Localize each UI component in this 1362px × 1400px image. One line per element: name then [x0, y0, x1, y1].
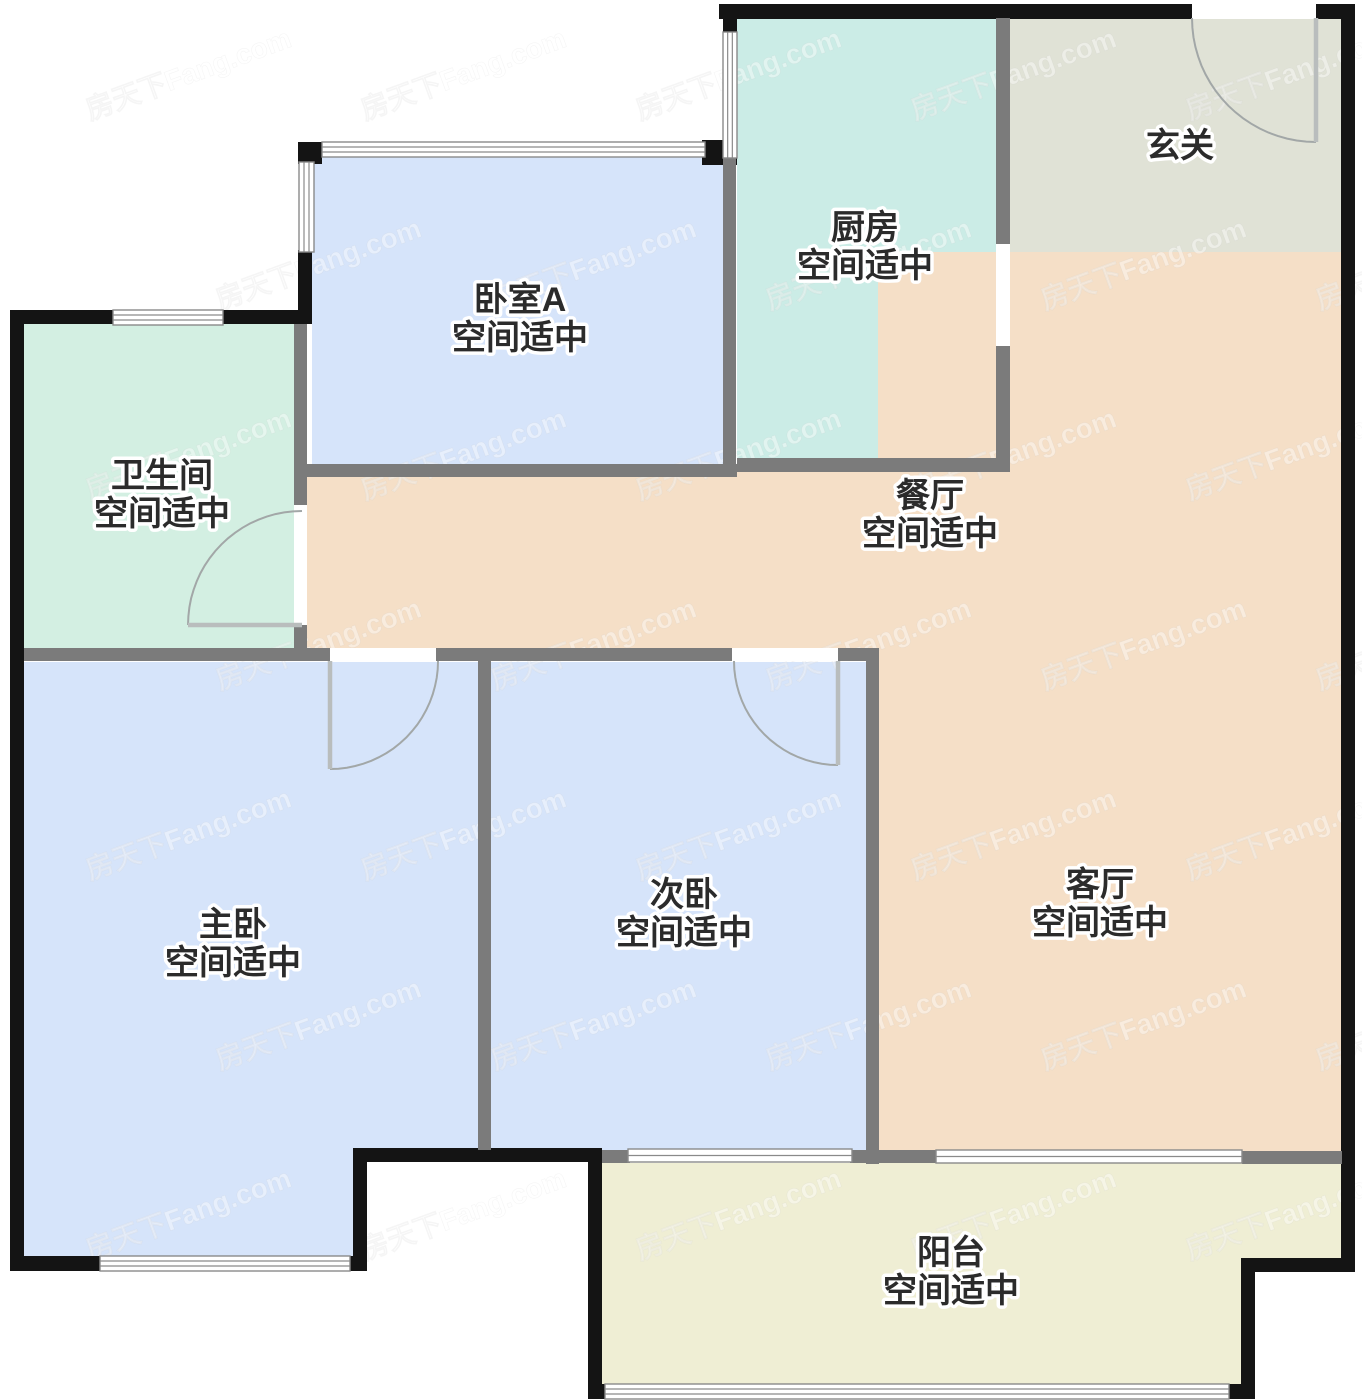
label-second: 次卧 — [650, 876, 718, 914]
label-dining: 餐厅 — [896, 477, 964, 515]
floor-plan-svg: 房天下Fang.com房天下Fang.com房天下Fang.com房天下Fang… — [0, 0, 1362, 1400]
interior-wall — [1242, 1151, 1342, 1164]
exterior-wall — [353, 1148, 367, 1270]
exterior-wall — [1241, 1258, 1355, 1272]
exterior-wall — [723, 4, 737, 34]
label-balcony: 阳台 — [917, 1234, 985, 1272]
exterior-wall — [1241, 1258, 1255, 1399]
exterior-wall — [10, 310, 115, 324]
interior-wall — [866, 648, 879, 1164]
sublabel-bedroomA: 空间适中 — [452, 319, 588, 357]
label-kitchen: 厨房 — [831, 209, 899, 247]
balcony-bottom-window — [605, 1384, 1229, 1399]
master-bottom-window — [100, 1256, 350, 1271]
kitchen-left-window — [723, 32, 737, 158]
interior-wall — [436, 648, 732, 661]
sublabel-living: 空间适中 — [1032, 904, 1168, 942]
label-bedroomA: 卧室A — [474, 280, 567, 319]
sublabel-balcony: 空间适中 — [883, 1272, 1019, 1310]
living-balcony-slider — [936, 1150, 1242, 1163]
exterior-wall — [298, 142, 322, 164]
interior-wall — [737, 458, 1010, 472]
bedroomA-top-window — [322, 142, 705, 157]
interior-wall — [850, 1150, 936, 1163]
label-bathroom: 卫生间 — [111, 457, 213, 495]
bathroom-top-window — [113, 310, 223, 325]
sublabel-second: 空间适中 — [616, 914, 752, 952]
exterior-wall — [1316, 4, 1341, 19]
second-balcony-slider — [628, 1149, 852, 1162]
label-foyer: 玄关 — [1146, 127, 1214, 165]
floor-plan-canvas: 房天下Fang.com房天下Fang.com房天下Fang.com房天下Fang… — [0, 0, 1362, 1400]
exterior-wall — [588, 1148, 602, 1399]
sublabel-master: 空间适中 — [165, 944, 301, 982]
sublabel-bathroom: 空间适中 — [94, 495, 230, 533]
exterior-wall — [719, 4, 1192, 19]
exterior-wall — [223, 310, 312, 324]
exterior-wall — [1341, 4, 1355, 1272]
interior-wall — [996, 346, 1010, 472]
exterior-wall — [298, 250, 312, 312]
room-living — [878, 252, 1341, 1151]
label-master: 主卧 — [199, 906, 267, 944]
exterior-wall — [353, 1148, 602, 1162]
label-living: 客厅 — [1066, 865, 1134, 904]
interior-wall — [294, 324, 307, 507]
interior-wall — [478, 661, 491, 1150]
kitchen-doorway — [996, 244, 1010, 346]
interior-wall — [723, 156, 736, 466]
sublabel-dining: 空间适中 — [862, 515, 998, 553]
sublabel-kitchen: 空间适中 — [797, 247, 933, 285]
bedroomA-left-window — [299, 162, 314, 252]
exterior-wall — [348, 1256, 367, 1271]
interior-wall — [305, 464, 737, 477]
interior-wall — [24, 648, 330, 661]
interior-wall — [996, 18, 1010, 244]
exterior-wall — [10, 310, 24, 1271]
exterior-wall — [1227, 1384, 1255, 1399]
interior-wall — [602, 1150, 630, 1163]
